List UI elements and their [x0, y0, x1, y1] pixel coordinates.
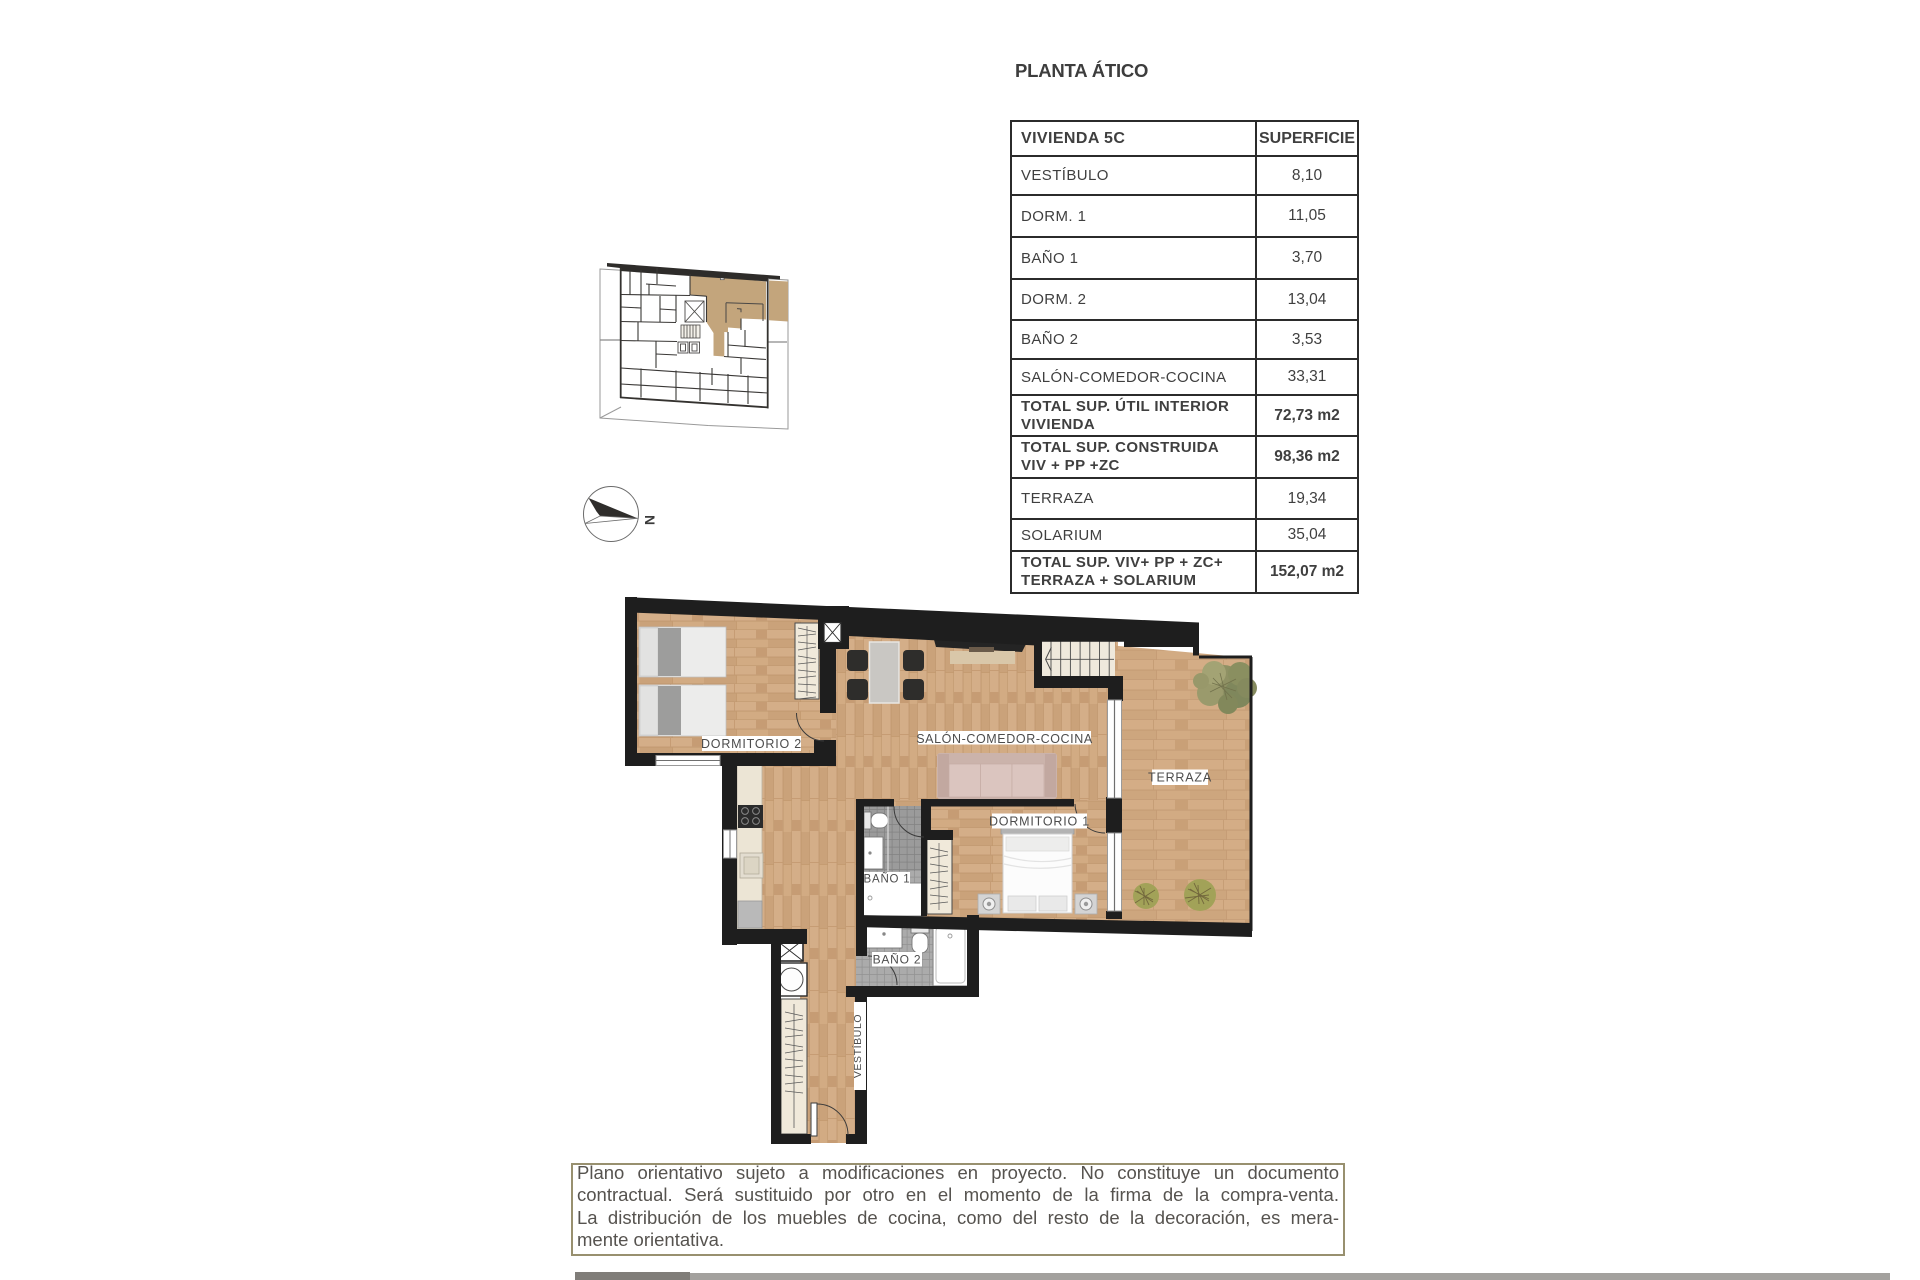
svg-text:N: N — [642, 515, 658, 525]
svg-text:BAÑO 2: BAÑO 2 — [873, 953, 922, 967]
svg-text:VESTÍBULO: VESTÍBULO — [851, 1014, 864, 1078]
svg-text:DORMITORIO 2: DORMITORIO 2 — [701, 737, 802, 751]
svg-text:TERRAZA: TERRAZA — [1148, 771, 1212, 785]
svg-text:DORMITORIO 1: DORMITORIO 1 — [989, 815, 1090, 829]
svg-text:SALÓN-COMEDOR-COCINA: SALÓN-COMEDOR-COCINA — [916, 731, 1093, 746]
svg-text:BAÑO 1: BAÑO 1 — [864, 873, 911, 886]
